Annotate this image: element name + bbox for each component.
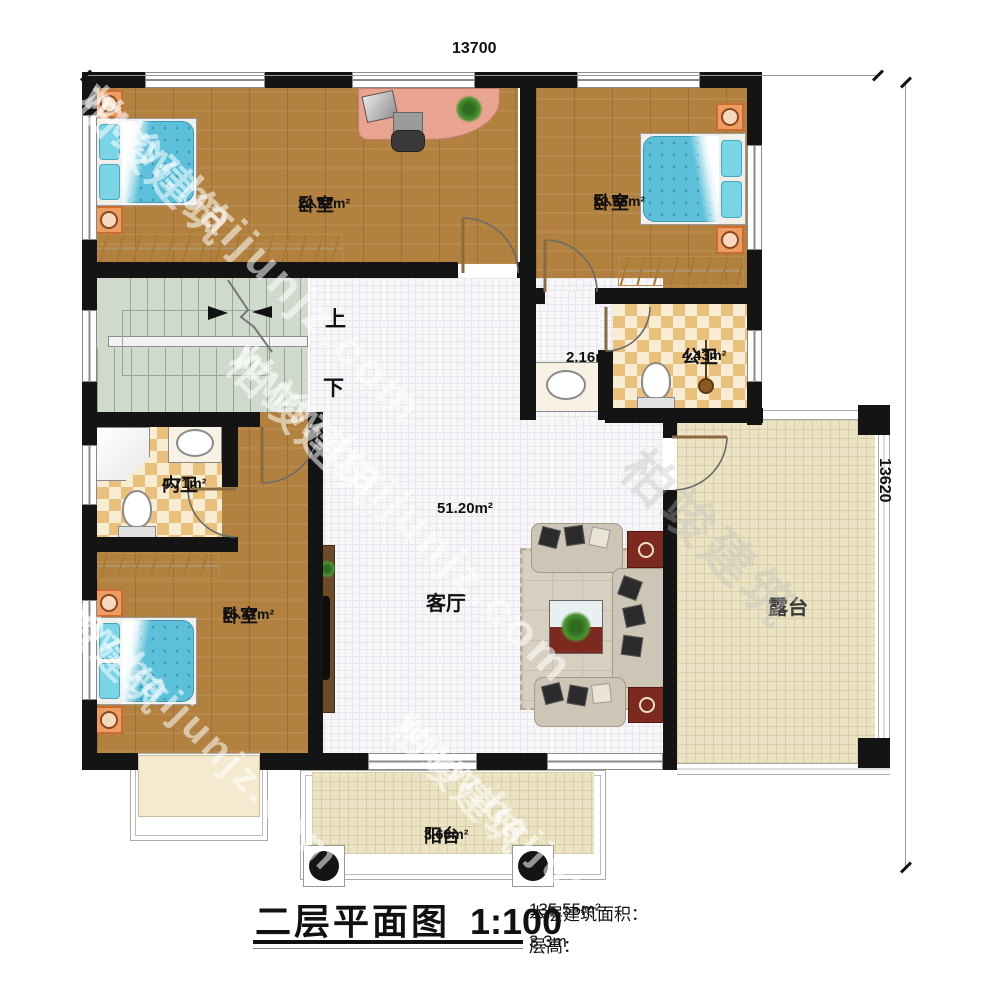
dimension-line-right [905, 82, 906, 868]
dimension-right-value: 13620 [875, 458, 893, 503]
page-title: 二层平面图 [255, 893, 450, 945]
floor-area-value: 135.55m² [529, 900, 601, 920]
door-arc [262, 427, 318, 483]
door-arc [463, 218, 518, 273]
title-underline-thick [253, 940, 523, 944]
title-underline-thin [253, 948, 523, 949]
door-arc [675, 437, 727, 490]
dimension-top-value: 13700 [452, 40, 497, 58]
door-swing-overlay [0, 0, 1000, 990]
stair-direction-arrows [208, 306, 272, 320]
title-row: 二层平面图 1:100 [255, 893, 562, 945]
door-arc [545, 240, 597, 292]
dimension-line-top [85, 75, 878, 76]
door-arc [188, 489, 236, 537]
floor-height-value: 3.3m [529, 932, 567, 952]
door-arc [606, 307, 650, 351]
floor-plan: 卧室 22.52m² 卧室 12.66m² 2.16m² 公卫 4.43m² 内… [0, 0, 1000, 990]
